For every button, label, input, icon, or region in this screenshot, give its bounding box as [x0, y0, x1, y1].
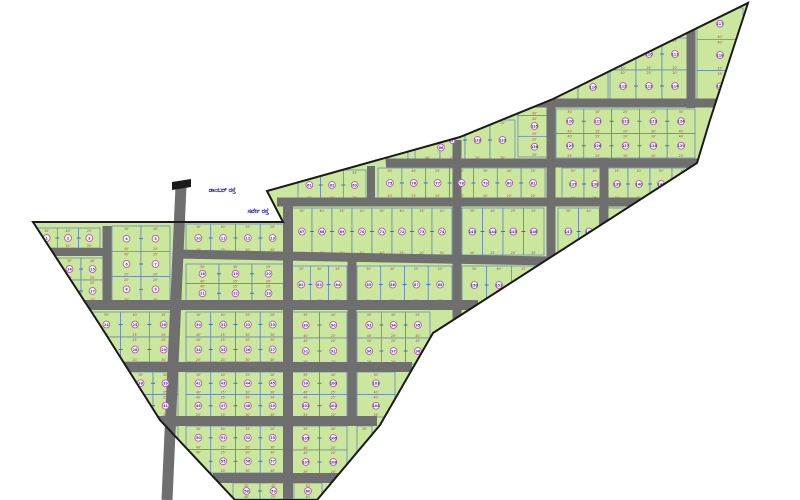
plot-dimension: 40'	[303, 446, 308, 450]
plot-dimension: 40'	[374, 396, 379, 400]
plot-dimension: 40'	[411, 169, 416, 173]
plot-dimension: 20'	[438, 267, 443, 271]
plot-dimension: 25'	[196, 358, 201, 362]
plot-number: 81	[531, 181, 536, 185]
plot-number: 52	[246, 436, 251, 440]
plot-dimension: 30'	[124, 227, 129, 231]
plot-dimension: 25'	[124, 278, 129, 282]
plot-number: 151	[495, 283, 503, 287]
plot-dimension: 20'	[245, 445, 250, 449]
plot-dimension: 25'	[233, 285, 238, 289]
plot-dimension: 20'	[245, 338, 250, 342]
plot-number: 126	[594, 144, 602, 148]
plot-number: 21	[200, 292, 205, 296]
plot-number: 99	[303, 382, 308, 386]
plot-dimension: 30'	[366, 267, 371, 271]
plot-dimension: 40'	[567, 135, 572, 139]
plot-number: 114	[671, 84, 679, 88]
plot-number: 106	[330, 436, 338, 440]
plot-dimension: 40'	[221, 225, 226, 229]
plot-number: 100	[330, 382, 338, 386]
plot-dimension: 25'	[340, 209, 345, 213]
plot-dimension: 25'	[221, 445, 226, 449]
plot-number: 107	[302, 460, 310, 464]
plot-number: 128	[650, 144, 658, 148]
plot-dimension: 40'	[221, 373, 226, 377]
plot-number: 56	[246, 460, 251, 464]
plot-dimension: 40'	[490, 209, 495, 213]
plot-number: 121	[594, 120, 602, 124]
plot-number: 84	[335, 283, 340, 287]
plot-dimension: 40'	[718, 35, 723, 39]
plot-dimension: 25'	[153, 247, 158, 251]
plot-dimension: 30'	[270, 390, 275, 394]
plot-number: 122	[622, 120, 630, 124]
plot-number: 117	[716, 22, 724, 26]
plot-number: 143	[469, 230, 477, 234]
plot-dimension: 20'	[623, 129, 628, 133]
plot-dimension: 30'	[367, 313, 372, 317]
plot-dimension: 25'	[567, 154, 572, 158]
plot-dimension: 40'	[595, 110, 600, 114]
plot-number: 63	[352, 183, 357, 187]
plot-number: 132	[474, 138, 482, 142]
plot	[415, 120, 440, 160]
plot-dimension: 25'	[420, 209, 425, 213]
plot	[128, 395, 153, 418]
plot-dimension: 40'	[233, 265, 238, 269]
plot-number: 35	[221, 348, 226, 352]
plot-number: 49	[270, 404, 275, 408]
plot-dimension: 20'	[245, 390, 250, 394]
plot-number: 62	[330, 183, 335, 187]
plot-number: 19	[233, 272, 238, 276]
plot-dimension: 40'	[651, 154, 656, 158]
plot-number: 97	[391, 349, 396, 353]
plot-dimension: 25'	[90, 276, 95, 280]
plot-dimension: 25'	[133, 338, 138, 342]
plot-dimension: 20'	[415, 339, 420, 343]
plot-number: 94	[391, 323, 396, 327]
plot-number: 89	[303, 323, 308, 327]
plot-dimension: 20'	[153, 278, 158, 282]
plot-dimension: 30'	[387, 169, 392, 173]
plot-dimension: 40'	[124, 253, 129, 257]
plot-number: 42	[196, 382, 201, 386]
plot-dimension: 25'	[271, 495, 276, 499]
plot-dimension: 20'	[595, 154, 600, 158]
plot-number: 82	[299, 283, 304, 287]
plot-dimension: 30'	[679, 110, 684, 114]
plot-number: 10	[196, 236, 201, 240]
plot-number: 72	[400, 230, 405, 234]
plot-dimension: 40'	[303, 390, 308, 394]
plot-number: 123	[650, 120, 658, 124]
plot-number: 71	[380, 230, 385, 234]
plot-dimension: 25'	[391, 334, 396, 338]
plot-dimension: 40'	[367, 334, 372, 338]
plot-dimension: 20'	[161, 333, 166, 337]
plot-dimension: 40'	[718, 41, 723, 45]
plot-dimension: 40'	[320, 209, 325, 213]
plot-number: 18	[200, 272, 205, 276]
plot-dimension: 20'	[221, 358, 226, 362]
plot-dimension: 25'	[718, 66, 723, 70]
plot-dimension: 25'	[647, 71, 652, 75]
plot-number: 46	[196, 404, 201, 408]
plot-number: 93	[367, 323, 372, 327]
plot-number: 34	[196, 348, 201, 352]
plot-number: 26	[161, 323, 166, 327]
plot-number: 96	[367, 349, 372, 353]
plot-dimension: 20'	[161, 338, 166, 342]
plot-dimension: 30'	[567, 110, 572, 114]
plot-dimension: 25'	[221, 451, 226, 455]
plot-dimension: 30'	[380, 209, 385, 213]
plot-dimension: 30'	[245, 358, 250, 362]
plot-dimension: 30'	[303, 373, 308, 377]
plot-dimension: 40'	[331, 313, 336, 317]
plot-dimension: 40'	[306, 495, 311, 499]
plot-dimension: 40'	[400, 209, 405, 213]
plot-dimension: 40'	[244, 495, 249, 499]
plot-number: 68	[320, 230, 325, 234]
plot-dimension: 40'	[270, 358, 275, 362]
plot-dimension: 30'	[67, 259, 72, 263]
plot-number: 32	[246, 323, 251, 327]
plot-dimension: 40'	[593, 169, 598, 173]
plot-dimension: 20'	[637, 169, 642, 173]
plot-number: 78	[459, 181, 464, 185]
plot-dimension: 25'	[679, 154, 684, 158]
plot-dimension: 40'	[196, 445, 201, 449]
plot-dimension: 40'	[497, 267, 502, 271]
plot-number: 17	[90, 289, 95, 293]
plot-dimension: 30'	[623, 154, 628, 158]
plot-dimension: 40'	[196, 396, 201, 400]
plot-dimension: 25'	[153, 253, 158, 257]
plot-number: 92	[331, 349, 336, 353]
plot-dimension: 30'	[196, 225, 201, 229]
plot-dimension: 40'	[66, 229, 71, 233]
plot-number: 61	[307, 183, 312, 187]
plot-dimension: 25'	[490, 251, 495, 255]
plot-dimension: 30'	[270, 396, 275, 400]
plot-dimension: 20'	[245, 451, 250, 455]
plot-dimension: 20'	[651, 110, 656, 114]
plot-dimension: 20'	[266, 285, 271, 289]
plot-number: 150	[471, 283, 479, 287]
plot-dimension: 20'	[153, 272, 158, 276]
plot-dimension: 40'	[221, 427, 226, 431]
plot-number: 45	[270, 382, 275, 386]
plot-dimension: 40'	[567, 129, 572, 133]
plot-dimension: 20'	[435, 194, 440, 198]
plot-number: 127	[622, 144, 630, 148]
plot-dimension: 40'	[621, 71, 626, 75]
plot-number: 25	[133, 323, 138, 327]
plot-dimension: 25'	[245, 373, 250, 377]
plot-number: 98	[415, 349, 420, 353]
plot-number: 77	[435, 181, 440, 185]
plot-dimension: 20'	[415, 334, 420, 338]
plot-number: 136	[531, 145, 539, 149]
plot-dimension: 40'	[200, 279, 205, 283]
plot-dimension: 40'	[196, 390, 201, 394]
plot-number: 140	[635, 182, 643, 186]
plot-number: 44	[246, 382, 251, 386]
plot-dimension: 40'	[367, 339, 372, 343]
plot-dimension: 25'	[331, 390, 336, 394]
plot-dimension: 25'	[507, 194, 512, 198]
plot-number: 118	[716, 53, 724, 57]
plot-number: 73	[420, 230, 425, 234]
plot-dimension: 20'	[221, 469, 226, 473]
plot-number: 22	[233, 292, 238, 296]
plot-number: 55	[221, 460, 226, 464]
plot-dimension: 30'	[138, 373, 143, 377]
plot-dimension: 25'	[352, 171, 357, 175]
plot-number: 146	[530, 230, 538, 234]
road-label: ಡಾಂಬರ್ ರಸ್ತೆ	[209, 186, 236, 194]
plot-dimension: 30'	[440, 251, 445, 255]
plot-dimension: 25'	[221, 333, 226, 337]
plot-number: 113	[645, 84, 653, 88]
plot-dimension: 25'	[124, 272, 129, 276]
plot-dimension: 30'	[270, 248, 275, 252]
plot-number: 111	[671, 52, 679, 56]
plot-dimension: 30'	[270, 445, 275, 449]
plot-dimension: 25'	[532, 132, 537, 136]
plot-number: 104	[372, 404, 380, 408]
plot-number: 60	[306, 489, 311, 493]
plot-dimension: 25'	[331, 339, 336, 343]
plot-number: 41	[163, 404, 168, 408]
plot-number: 108	[330, 460, 338, 464]
plot-number: 90	[331, 323, 336, 327]
plot-dimension: 30'	[104, 313, 109, 317]
plot-dimension: 40'	[200, 285, 205, 289]
plot-number: 87	[414, 283, 419, 287]
plot-number: 57	[270, 460, 275, 464]
plot-dimension: 20'	[623, 135, 628, 139]
plot-number: 135	[531, 124, 539, 128]
plot-dimension: 25'	[90, 281, 95, 285]
plot-number: 75	[388, 181, 393, 185]
plot-number: 124	[678, 120, 686, 124]
plot-number: 66	[439, 146, 444, 150]
plot	[511, 266, 536, 304]
plot-dimension: 20'	[440, 209, 445, 213]
plot-dimension: 40'	[374, 390, 379, 394]
plot-dimension: 20'	[500, 121, 505, 125]
plot-number: 47	[221, 404, 226, 408]
plot-number: 58	[244, 489, 249, 493]
plot-number: 15	[90, 267, 95, 271]
plot-number: 144	[489, 230, 497, 234]
plot-number: 31	[221, 323, 226, 327]
plot-dimension: 40'	[303, 334, 308, 338]
plot-number: 70	[360, 230, 365, 234]
plot-dimension: 40'	[317, 267, 322, 271]
plot-dimension: 30'	[200, 265, 205, 269]
layout-map-svg: 30'40'25'25'20'30'40'40'25'40'25'25'20'2…	[0, 0, 800, 500]
plot-dimension: 40'	[483, 194, 488, 198]
plot-dimension: 40'	[196, 338, 201, 342]
plot-dimension: 25'	[415, 313, 420, 317]
plot-dimension: 20'	[245, 396, 250, 400]
plot-dimension: 25'	[521, 267, 526, 271]
plot-dimension: 20'	[531, 209, 536, 213]
plot-number: 116	[589, 85, 597, 89]
plot-dimension: 25'	[647, 66, 652, 70]
plot-number: 147	[565, 230, 573, 234]
plot-dimension: 30'	[303, 427, 308, 431]
plot-dimension: 25'	[245, 225, 250, 229]
plot-dimension: 30'	[303, 313, 308, 317]
plot-layout-map: 30'40'25'25'20'30'40'40'25'40'25'25'20'2…	[0, 0, 800, 500]
plot-dimension: 25'	[133, 333, 138, 337]
plot-dimension: 40'	[133, 313, 138, 317]
plot-dimension: 25'	[411, 194, 416, 198]
plot-dimension: 20'	[245, 333, 250, 337]
plot-number: 51	[221, 436, 226, 440]
plot-dimension: 40'	[303, 451, 308, 455]
plot-number: 59	[271, 489, 276, 493]
plot-dimension: 40'	[532, 117, 537, 121]
plot-dimension: 25'	[511, 209, 516, 213]
plot-dimension: 40'	[470, 251, 475, 255]
plot-dimension: 20'	[87, 244, 92, 248]
plot-number: 11	[221, 236, 226, 240]
plot-number: 125	[566, 144, 574, 148]
plot-dimension: 30'	[531, 251, 536, 255]
plot-dimension: 40'	[196, 333, 201, 337]
plot-dimension: 40'	[303, 339, 308, 343]
plot-number: 67	[300, 230, 305, 234]
plot-dimension: 25'	[331, 451, 336, 455]
plot-number: 24	[104, 323, 109, 327]
plot-number: 36	[246, 348, 251, 352]
plot-dimension: 25'	[331, 446, 336, 450]
plot-dimension: 20'	[673, 66, 678, 70]
plot-number: 101	[302, 404, 310, 408]
plot-dimension: 30'	[651, 135, 656, 139]
plot-number: 102	[330, 404, 338, 408]
plot-dimension: 20'	[270, 225, 275, 229]
plot-number: 50	[196, 436, 201, 440]
plot-dimension: 20'	[133, 358, 138, 362]
plot-number: 103	[372, 382, 380, 386]
plot-number: 76	[411, 181, 416, 185]
plot-number: 120	[566, 120, 574, 124]
plot-dimension: 25'	[66, 244, 71, 248]
plot-dimension: 30'	[651, 129, 656, 133]
plot-dimension: 25'	[623, 110, 628, 114]
plot-number: 13	[270, 236, 275, 240]
plot-number: 12	[246, 236, 251, 240]
plot-dimension: 40'	[679, 129, 684, 133]
plot-dimension: 30'	[44, 229, 49, 233]
plot-dimension: 40'	[221, 313, 226, 317]
plot-dimension: 20'	[360, 209, 365, 213]
plot-dimension: 40'	[153, 227, 158, 231]
plot-dimension: 30'	[566, 209, 571, 213]
plot-number: 139	[613, 182, 621, 186]
plot-dimension: 20'	[531, 194, 536, 198]
plot-number: 20	[266, 272, 271, 276]
plot-number: 29	[161, 348, 166, 352]
plot-dimension: 40'	[507, 169, 512, 173]
plot-dimension: 20'	[270, 427, 275, 431]
plot-dimension: 30'	[374, 373, 379, 377]
plot-number: 23	[266, 292, 271, 296]
plot-number: 91	[303, 349, 308, 353]
plot-number: 145	[510, 230, 518, 234]
plot-dimension: 25'	[245, 313, 250, 317]
plot-dimension: 30'	[362, 427, 367, 431]
survey-flag-marker	[172, 179, 191, 190]
plot-dimension: 25'	[595, 129, 600, 133]
plot-dimension: 40'	[391, 313, 396, 317]
plot-dimension: 25'	[221, 338, 226, 342]
plot-number: 133	[499, 138, 507, 142]
plot-number: 30	[196, 323, 201, 327]
plot-number: 14	[67, 267, 72, 271]
plot-dimension: 20'	[266, 279, 271, 283]
plot-number: 129	[678, 144, 686, 148]
plot-dimension: 30'	[270, 451, 275, 455]
plot-dimension: 20'	[673, 71, 678, 75]
plot-number: 39	[163, 382, 168, 386]
plot-number: 53	[270, 436, 275, 440]
plot-dimension: 25'	[615, 169, 620, 173]
plot-dimension: 25'	[331, 334, 336, 338]
plot-dimension: 25'	[532, 138, 537, 142]
plot-dimension: 25'	[233, 279, 238, 283]
plot-number: 80	[507, 181, 512, 185]
plot-number: 28	[133, 348, 138, 352]
plot-dimension: 30'	[472, 267, 477, 271]
plot-number: 88	[438, 283, 443, 287]
plot-dimension: 30'	[299, 267, 304, 271]
plot-dimension: 25'	[331, 396, 336, 400]
road-label: ಸರ್ವೇ ರಸ್ತೆ	[247, 207, 269, 215]
plot-dimension: 40'	[331, 427, 336, 431]
plot-dimension: 25'	[595, 135, 600, 139]
plot-dimension: 30'	[161, 358, 166, 362]
plot-dimension: 40'	[303, 396, 308, 400]
plot-number: 79	[483, 181, 488, 185]
plot-number: 137	[569, 182, 577, 186]
plot-dimension: 40'	[587, 209, 592, 213]
plot-dimension: 25'	[335, 267, 340, 271]
plot-number: 43	[221, 382, 226, 386]
plot-dimension: 20'	[270, 373, 275, 377]
plot-dimension: 40'	[532, 111, 537, 115]
plot-dimension: 40'	[679, 135, 684, 139]
plot-dimension: 25'	[221, 396, 226, 400]
plot-number: 33	[270, 323, 275, 327]
plot-dimension: 30'	[245, 469, 250, 473]
plot-number: 37	[270, 348, 275, 352]
plot-dimension: 25'	[266, 265, 271, 269]
plot-dimension: 40'	[270, 469, 275, 473]
map-interior: 30'40'25'25'20'30'40'40'25'40'25'25'20'2…	[33, 3, 748, 500]
plot-dimension: 25'	[718, 72, 723, 76]
plot-number: 83	[317, 283, 322, 287]
plot-dimension: 40'	[196, 451, 201, 455]
